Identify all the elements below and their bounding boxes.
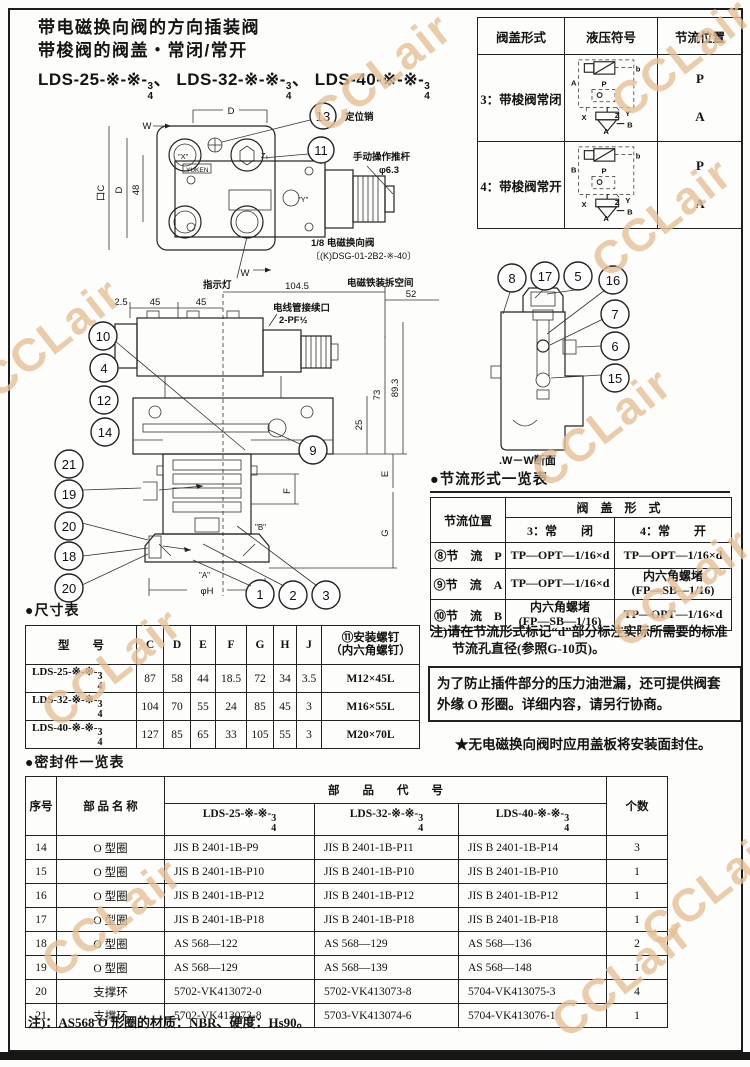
table-cell: TP—OPT—1/16×d: [506, 569, 615, 600]
dimension-block: ●尺寸表 型 号 C D E F G H J ⑪安装螺钉（内六角螺钉） LDS-…: [25, 600, 420, 749]
leak-warning-box: 为了防止插件部分的压力油泄漏，还可提供阀套 外缘 O 形圈。详细内容，请另行协商…: [428, 666, 742, 722]
table-cell: 58: [164, 665, 191, 693]
table-cell: 85: [247, 693, 274, 721]
svg-text:b: b: [636, 151, 641, 160]
throttle-row-label: ⑧节 流 P: [431, 543, 506, 569]
throttle-row-label: ⑨节 流 A: [431, 569, 506, 600]
svg-text:18: 18: [62, 549, 76, 564]
table-cell: 104: [137, 693, 164, 721]
table-row: 20支撑环 5702-VK413072-05702-VK413073-8 570…: [26, 980, 668, 1004]
table-cell: 3: [297, 721, 322, 749]
table-row: 16O 型圈 JIS B 2401-1B-P12JIS B 2401-1B-P1…: [26, 884, 668, 908]
page-title: 带电磁换向阀的方向插装阀: [38, 16, 430, 39]
svg-text:10: 10: [96, 329, 110, 344]
col-header: 阀盖形式: [478, 18, 565, 55]
page-bottom-bar: [0, 1052, 750, 1060]
col-header: 液压符号: [565, 18, 658, 55]
table-row: 18O 型圈 AS 568—122AS 568—129 AS 568—1362: [26, 932, 668, 956]
cover-plate-note: ★无电磁换向阀时应用盖板将安装面封住。: [455, 736, 712, 753]
table-row: 19O 型圈 AS 568—129AS 568—139 AS 568—1481: [26, 956, 668, 980]
svg-text:B: B: [571, 166, 577, 175]
svg-text:2-PF½: 2-PF½: [279, 315, 308, 326]
svg-text:73: 73: [372, 390, 383, 401]
col-header: 节流位置: [658, 18, 743, 55]
col-header: 部 品 代 号: [165, 777, 607, 804]
svg-text:F: F: [282, 488, 293, 494]
svg-text:11: 11: [314, 143, 328, 158]
hydraulic-symbol-drawing: b A P X Z Y B A: [567, 57, 655, 135]
col-header: D: [164, 626, 191, 665]
catalog-page: CCLair CCLair CCLair CCLair CCLair CCLai…: [0, 0, 750, 1067]
svg-text:45: 45: [196, 297, 207, 308]
svg-text:4: 4: [100, 361, 107, 376]
throttle-table: 节流位置 阀 盖 形 式 3：常 闭 4：常 开 ⑧节 流 P TP—OPT—1…: [430, 497, 732, 631]
table-row: 15O 型圈 JIS B 2401-1B-P10JIS B 2401-1B-P1…: [26, 860, 668, 884]
table-cell: 3.5: [297, 665, 322, 693]
table-cell: M16×55L: [322, 693, 420, 721]
model-code: LDS-40-※-※-34: [26, 721, 137, 749]
svg-text:89.3: 89.3: [390, 379, 401, 398]
hydraulic-symbol: b B P X Z Y B A: [565, 142, 658, 229]
col-header: J: [297, 626, 322, 665]
hydraulic-symbol-drawing: b B P X Z Y B A: [567, 144, 655, 222]
table-cell: M20×70L: [322, 721, 420, 749]
col-header: G: [247, 626, 274, 665]
svg-text:Y: Y: [625, 196, 630, 205]
svg-text:104.5: 104.5: [285, 281, 309, 292]
svg-text:15: 15: [608, 371, 622, 386]
model-code: LDS-32-※-※-34: [26, 693, 137, 721]
table-cell: 55: [274, 721, 297, 749]
svg-text:YUKEN: YUKEN: [186, 167, 209, 174]
svg-text:9: 9: [309, 443, 316, 458]
svg-text:D: D: [114, 186, 125, 193]
svg-text:X: X: [582, 113, 587, 122]
page-subtitle: 带梭阀的阀盖・常闭/常开: [38, 39, 430, 62]
table-cell: 65: [191, 721, 216, 749]
table-cell: 85: [164, 721, 191, 749]
svg-text:25: 25: [354, 420, 365, 431]
svg-text:"X": "X": [178, 152, 189, 161]
cover-form-table: 阀盖形式 液压符号 节流位置 3：带梭阀常闭 b A P: [477, 17, 743, 229]
svg-text:.W－W断面: .W－W断面: [499, 453, 556, 467]
table-cell: 34: [274, 665, 297, 693]
svg-text:17: 17: [538, 269, 552, 284]
svg-text:12: 12: [97, 393, 111, 408]
svg-text:45: 45: [150, 297, 161, 308]
svg-text:Z₁: Z₁: [261, 151, 269, 160]
svg-text:G: G: [380, 529, 391, 536]
col-header: C: [137, 626, 164, 665]
col-header: F: [216, 626, 247, 665]
svg-text:X: X: [582, 200, 587, 209]
col-header-model: LDS-32-※-※-34: [315, 804, 459, 836]
table-cell: 18.5: [216, 665, 247, 693]
table-cell: 24: [216, 693, 247, 721]
table-cell: 127: [137, 721, 164, 749]
throttle-table-title: ●节流形式一览表: [430, 468, 730, 493]
col-header: E: [191, 626, 216, 665]
table-row: 17O 型圈 JIS B 2401-1B-P18JIS B 2401-1B-P1…: [26, 908, 668, 932]
hydraulic-symbol: b A P X Z Y B A: [565, 55, 658, 142]
col-header: ⑪安装螺钉（内六角螺钉）: [322, 626, 420, 665]
svg-text:定位销: 定位销: [344, 111, 374, 123]
throttle-note: 注)请在节流形式标记“d”部分标注实际所需要的标准 节流孔直径(参照G-10页)…: [430, 623, 738, 657]
svg-text:电线管接续口: 电线管接续口: [273, 302, 330, 314]
table-cell: 3: [297, 693, 322, 721]
model-code: LDS-25-※-※-34: [26, 665, 137, 693]
table-cell: 45: [274, 693, 297, 721]
svg-text:b: b: [636, 64, 641, 73]
table-cell: 70: [164, 693, 191, 721]
table-cell: 72: [247, 665, 274, 693]
col-header-model: LDS-25-※-※-34: [165, 804, 315, 836]
cover-form-label: 4：带梭阀常开: [478, 142, 565, 229]
table-cell: TP—OPT—1/16×d: [506, 543, 615, 569]
svg-text:Y: Y: [625, 109, 630, 118]
col-header-model: LDS-40-※-※-34: [459, 804, 607, 836]
svg-text:1/8 电磁换向阀: 1/8 电磁换向阀: [311, 237, 374, 249]
svg-text:19: 19: [62, 487, 76, 502]
col-header: 3：常 闭: [506, 518, 615, 543]
table-cell: 内六角螺堵(FP—SB—1/16): [615, 569, 732, 600]
svg-text:φ6.3: φ6.3: [379, 165, 399, 176]
svg-text:口C: 口C: [96, 185, 107, 202]
svg-text:手动操作推杆: 手动操作推杆: [353, 151, 411, 163]
table-cell: 87: [137, 665, 164, 693]
svg-text:"Y": "Y": [298, 195, 309, 204]
svg-text:P: P: [601, 166, 606, 175]
col-header: 部 品 名 称: [57, 777, 165, 836]
col-header: 型 号: [26, 626, 137, 665]
top-view-drawing: D W 口C D 48 W YUKEN "X" "Y" Z₁ 13 11 定位销…: [95, 98, 445, 290]
svg-text:"A": "A": [199, 571, 210, 580]
seal-table: 序号 部 品 名 称 部 品 代 号 个数 LDS-25-※-※-34 LDS-…: [25, 776, 668, 1028]
svg-text:21: 21: [62, 457, 76, 472]
svg-text:8: 8: [508, 271, 515, 286]
col-header: 序号: [26, 777, 57, 836]
svg-text:〔(K)DSG-01-2B2-※-40〕: 〔(K)DSG-01-2B2-※-40〕: [311, 251, 416, 261]
svg-text:A: A: [571, 79, 577, 88]
seal-note: 注)：AS568 O 形圈的材质：NBR、硬度：Hs90。: [28, 1014, 310, 1031]
svg-text:D: D: [228, 106, 235, 117]
svg-text:A: A: [603, 127, 609, 136]
table-cell: TP—OPT—1/16×d: [615, 543, 732, 569]
seal-table-title: ●密封件一览表: [25, 752, 668, 772]
title-block: 带电磁换向阀的方向插装阀 带梭阀的阀盖・常闭/常开 LDS-25-※-※-34、…: [38, 16, 430, 102]
col-header: 阀 盖 形 式: [506, 498, 732, 518]
svg-text:16: 16: [606, 273, 620, 288]
col-header: H: [274, 626, 297, 665]
svg-text:A: A: [603, 214, 609, 223]
table-row: 14O 型圈 JIS B 2401-1B-P9JIS B 2401-1B-P11…: [26, 836, 668, 860]
svg-text:B: B: [627, 207, 633, 216]
col-header: 4：常 开: [615, 518, 732, 543]
table-cell: 105: [247, 721, 274, 749]
seal-block: ●密封件一览表 序号 部 品 名 称 部 品 代 号 个数 LDS-25-※-※…: [25, 752, 668, 1028]
svg-text:6: 6: [611, 339, 618, 354]
svg-text:5: 5: [574, 269, 581, 284]
col-header: 节流位置: [431, 498, 506, 543]
svg-text:14: 14: [98, 425, 112, 440]
dimension-table-title: ●尺寸表: [25, 600, 420, 620]
svg-text:20: 20: [62, 519, 76, 534]
svg-text:2.5: 2.5: [114, 297, 127, 308]
svg-text:电磁铁装拆空间: 电磁铁装拆空间: [347, 277, 414, 289]
svg-text:E: E: [380, 471, 391, 477]
section-view-drawing: 电磁铁装拆空间 52 104.5 2.5 45 45 电线管接续口 2-PF½: [55, 278, 455, 628]
model-codes: LDS-25-※-※-34、 LDS-32-※-※-34、 LDS-40-※-※…: [38, 65, 430, 102]
svg-text:7: 7: [611, 307, 618, 322]
svg-text:48: 48: [131, 185, 142, 196]
svg-text:W: W: [143, 121, 152, 132]
dimension-table: 型 号 C D E F G H J ⑪安装螺钉（内六角螺钉） LDS-25-※-…: [25, 625, 420, 749]
svg-text:"B": "B": [255, 523, 266, 532]
svg-text:B: B: [627, 120, 633, 129]
table-cell: 33: [216, 721, 247, 749]
table-cell: 55: [191, 693, 216, 721]
svg-text:P: P: [601, 79, 606, 88]
table-cell: 44: [191, 665, 216, 693]
throttle-positions: PA: [658, 142, 743, 229]
svg-text:20: 20: [62, 581, 76, 596]
col-header: 个数: [607, 777, 668, 836]
throttle-block: ●节流形式一览表 节流位置 阀 盖 形 式 3：常 闭 4：常 开 ⑧节 流 P…: [430, 468, 732, 631]
throttle-positions: PA: [658, 55, 743, 142]
svg-text:52: 52: [406, 289, 417, 300]
svg-text:φH: φH: [200, 586, 213, 597]
cover-form-label: 3：带梭阀常闭: [478, 55, 565, 142]
svg-text:13: 13: [316, 109, 330, 124]
ww-section-drawing: 8 17 5 16 7 6 15 .W－W断面: [487, 248, 722, 468]
table-cell: M12×45L: [322, 665, 420, 693]
